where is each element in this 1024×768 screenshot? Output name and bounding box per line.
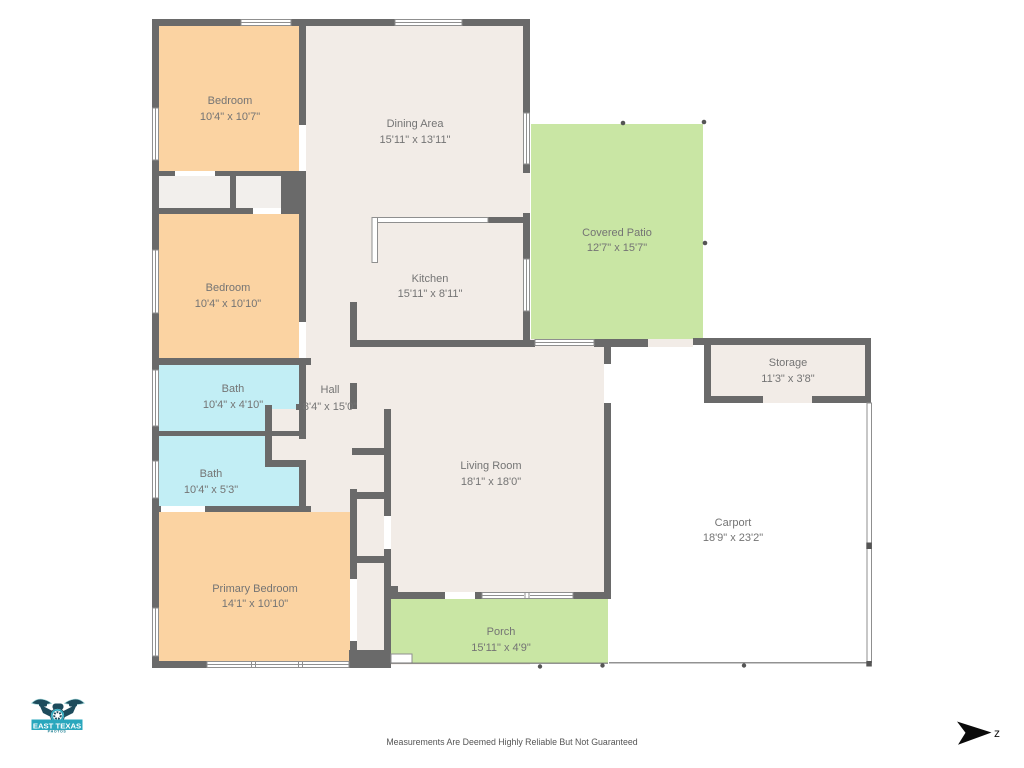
svg-text:PHOTOS: PHOTOS [48, 730, 67, 734]
svg-text:8'4" x 15'0": 8'4" x 15'0" [303, 401, 357, 413]
svg-text:18'9" x 23'2": 18'9" x 23'2" [703, 532, 763, 544]
svg-text:Hall: Hall [321, 384, 340, 396]
svg-text:Carport: Carport [715, 517, 752, 529]
svg-text:18'1" x 18'0": 18'1" x 18'0" [461, 476, 521, 488]
svg-text:z: z [994, 726, 1000, 740]
svg-text:12'7" x 15'7": 12'7" x 15'7" [587, 242, 647, 254]
svg-text:Storage: Storage [769, 357, 808, 369]
svg-text:Dining Area: Dining Area [387, 118, 445, 130]
svg-text:Bath: Bath [222, 383, 245, 395]
svg-text:Bath: Bath [200, 468, 223, 480]
svg-text:Covered Patio: Covered Patio [582, 227, 652, 239]
svg-text:10'4" x 5'3": 10'4" x 5'3" [184, 484, 238, 496]
svg-text:10'4" x 10'10": 10'4" x 10'10" [195, 298, 262, 310]
svg-text:15'11" x 4'9": 15'11" x 4'9" [471, 642, 531, 654]
svg-text:Bedroom: Bedroom [208, 95, 253, 107]
svg-text:Porch: Porch [487, 626, 516, 638]
svg-text:15'11" x 8'11": 15'11" x 8'11" [398, 288, 463, 300]
svg-text:14'1" x 10'10": 14'1" x 10'10" [222, 598, 289, 610]
svg-text:Primary Bedroom: Primary Bedroom [212, 583, 298, 595]
svg-text:Bedroom: Bedroom [206, 282, 251, 294]
svg-text:Measurements Are Deemed Highly: Measurements Are Deemed Highly Reliable … [386, 737, 637, 747]
svg-text:11'3" x 3'8": 11'3" x 3'8" [761, 373, 814, 385]
svg-text:Kitchen: Kitchen [412, 273, 449, 285]
svg-text:10'4" x 4'10": 10'4" x 4'10" [203, 399, 263, 411]
svg-text:Living Room: Living Room [460, 460, 521, 472]
svg-text:10'4" x 10'7": 10'4" x 10'7" [200, 111, 260, 123]
svg-text:15'11" x 13'11": 15'11" x 13'11" [380, 134, 451, 146]
